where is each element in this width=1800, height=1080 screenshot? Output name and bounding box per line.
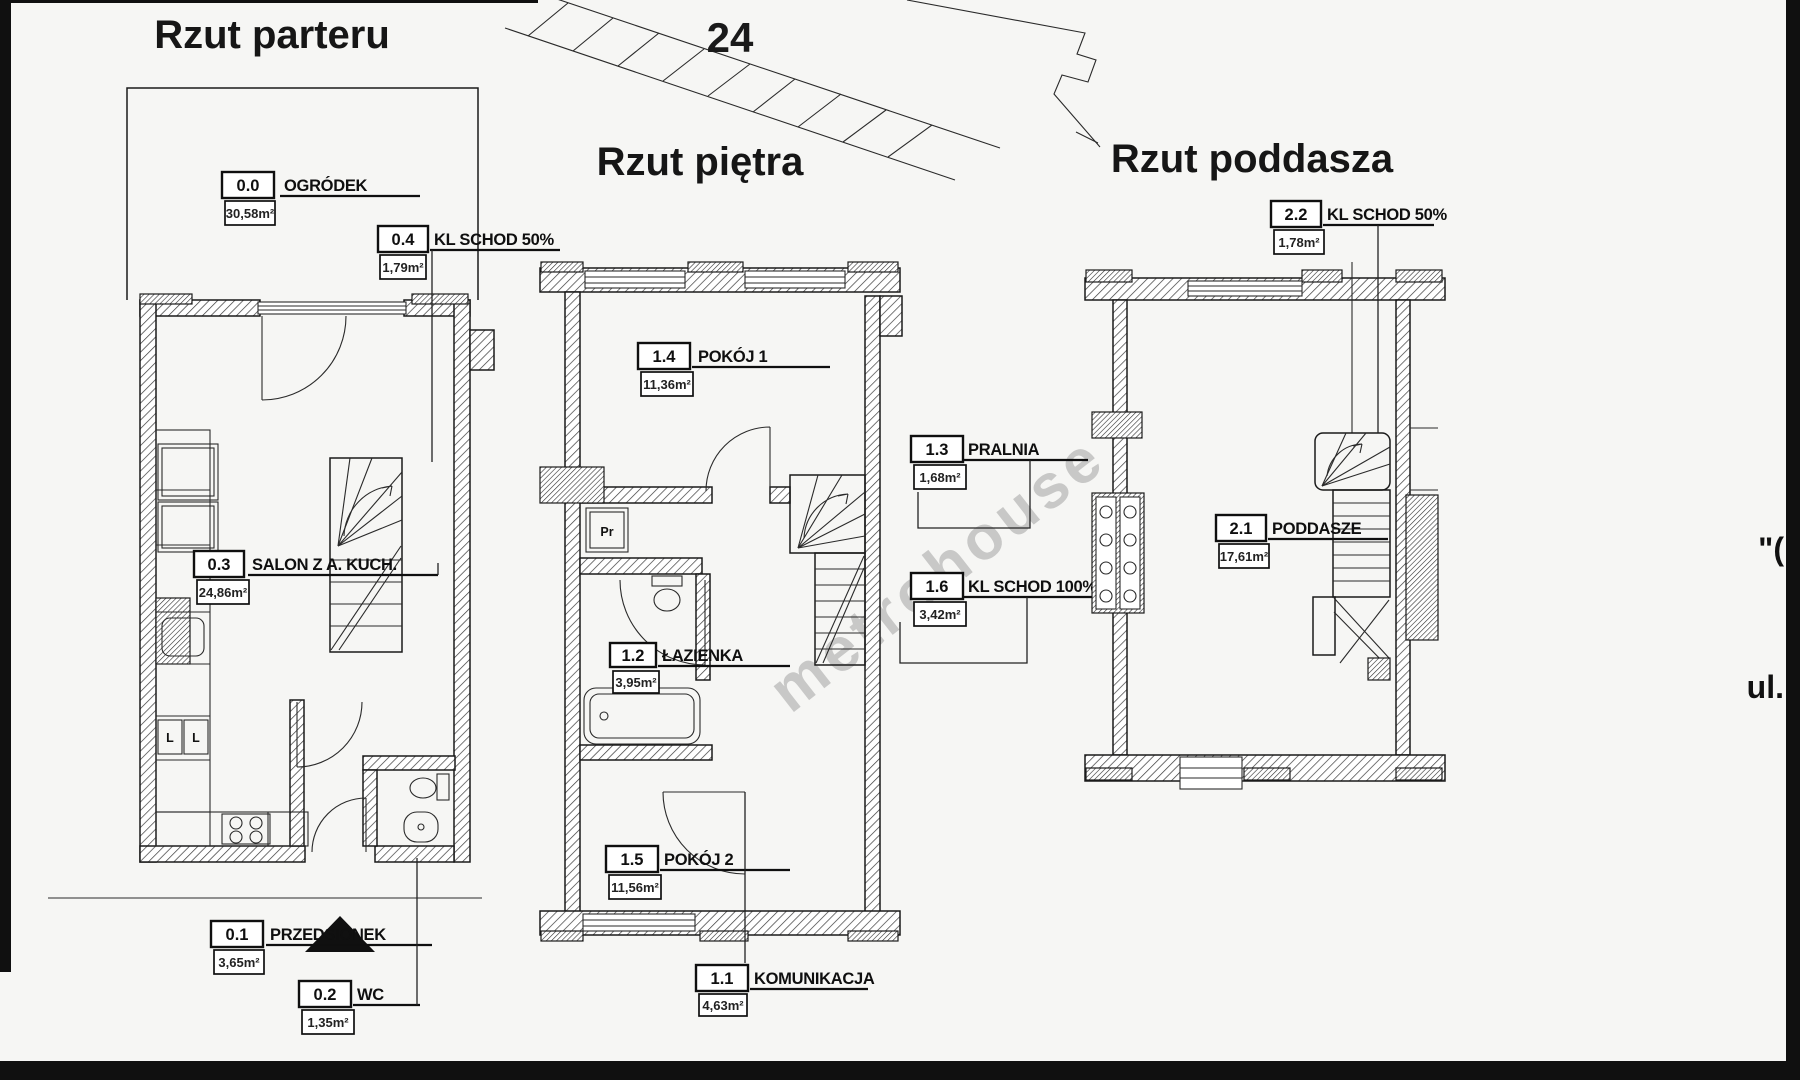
- parter-stairs-icon: [330, 458, 402, 652]
- room-label-ogrodek: 0.0 30,58m² OGRÓDEK: [222, 172, 420, 225]
- room-name: OGRÓDEK: [284, 176, 368, 195]
- right-margin-fragment: "(: [1758, 531, 1784, 567]
- room-number: 1.2: [622, 647, 645, 665]
- room-area: 1,35m²: [307, 1015, 349, 1030]
- room-area: 1,79m²: [382, 260, 424, 275]
- toilet-icon: [652, 576, 682, 611]
- room-name: POKÓJ 1: [698, 347, 768, 366]
- room-area: 4,63m²: [702, 998, 744, 1013]
- scan-edge-line-top: [8, 0, 538, 3]
- room-name: SALON Z A. KUCH.: [252, 556, 397, 574]
- hob-icon: [222, 814, 270, 844]
- room-name: KL SCHOD 100%: [968, 578, 1097, 596]
- scan-edge-bar-left: [0, 0, 11, 972]
- street-label-fragment: ul.: [1747, 669, 1784, 705]
- washbasin-icon: [404, 812, 438, 842]
- cabinet-L-cells: L L: [158, 720, 208, 754]
- room-name: POKÓJ 2: [664, 850, 734, 869]
- parter-door-arcs: [262, 316, 366, 852]
- room-label-kl-schod-16: 1.6 3,42m² KL SCHOD 100%: [900, 573, 1097, 663]
- room-area: 17,61m²: [1220, 549, 1269, 564]
- room-area: 1,78m²: [1278, 235, 1320, 250]
- room-label-kl-schod-22: 2.2 1,78m² KL SCHOD 50%: [1271, 201, 1448, 433]
- poddasze-stairs-icon: [1313, 433, 1390, 680]
- room-name: PRZEDSIONEK: [270, 926, 386, 944]
- room-number: 1.6: [926, 578, 949, 596]
- fridge-cabinet: [158, 444, 218, 552]
- room-area: 11,36m²: [643, 377, 691, 392]
- room-number: 0.1: [226, 926, 249, 944]
- room-area: 3,42m²: [919, 607, 961, 622]
- room-area: 3,65m²: [218, 955, 260, 970]
- room-area: 24,86m²: [199, 585, 248, 600]
- washer-icon: Pr: [586, 508, 628, 552]
- room-number: 1.1: [711, 970, 734, 988]
- site-parcel-outline: [907, 0, 1100, 147]
- room-area: 30,58m²: [226, 206, 275, 221]
- room-name: WC: [357, 986, 384, 1004]
- room-number: 2.1: [1230, 520, 1253, 538]
- plan-title-parter: Rzut parteru: [154, 13, 390, 57]
- plan-title-poddasze: Rzut poddasza: [1111, 137, 1394, 181]
- room-number: 2.2: [1285, 206, 1308, 224]
- room-area: 1,68m²: [919, 470, 961, 485]
- chimney-icon: [1092, 493, 1144, 613]
- plan-title-pietro: Rzut piętra: [597, 140, 804, 184]
- cabinet-label-right: L: [192, 731, 200, 745]
- room-label-pokoj1: 1.4 11,36m² POKÓJ 1: [638, 343, 830, 396]
- plan-parter: L L 0.0 30,58m² OGRÓDEK: [48, 88, 560, 1034]
- room-label-pokoj2: 1.5 11,56m² POKÓJ 2: [606, 846, 790, 899]
- room-number: 0.0: [237, 177, 260, 195]
- room-number: 0.2: [314, 986, 337, 1004]
- washer-label: Pr: [600, 525, 613, 539]
- room-area: 11,56m²: [611, 880, 659, 895]
- room-number: 0.4: [392, 231, 416, 249]
- scan-edge-bar-right: [1786, 0, 1800, 1080]
- room-name: KL SCHOD 50%: [1327, 206, 1448, 224]
- bathtub-icon: [584, 688, 700, 744]
- room-number: 1.5: [621, 851, 644, 869]
- scan-edge-bar-bottom: [0, 1061, 1800, 1080]
- room-number: 0.3: [208, 556, 231, 574]
- room-number: 1.4: [653, 348, 677, 366]
- room-name: KL SCHOD 50%: [434, 231, 555, 249]
- plan-poddasze: 2.2 1,78m² KL SCHOD 50% 2.1 17,61m² PODD…: [1085, 201, 1448, 789]
- room-name: KOMUNIKACJA: [754, 970, 875, 988]
- room-name: PRALNIA: [968, 441, 1040, 459]
- site-parcel-number: 24: [707, 14, 754, 61]
- room-name: ŁAZIENKA: [662, 647, 743, 665]
- cabinet-label-left: L: [166, 731, 174, 745]
- room-area: 3,95m²: [615, 675, 657, 690]
- room-number: 1.3: [926, 441, 949, 459]
- room-name: PODDASZE: [1272, 520, 1362, 538]
- toilet-icon: [410, 774, 449, 800]
- parter-window-top: [258, 302, 406, 314]
- floorplan-scan-page: 24 metrohouse Rzut parteru: [0, 0, 1800, 1080]
- room-label-komunikacja: 1.1 4,63m² KOMUNIKACJA: [696, 792, 875, 1016]
